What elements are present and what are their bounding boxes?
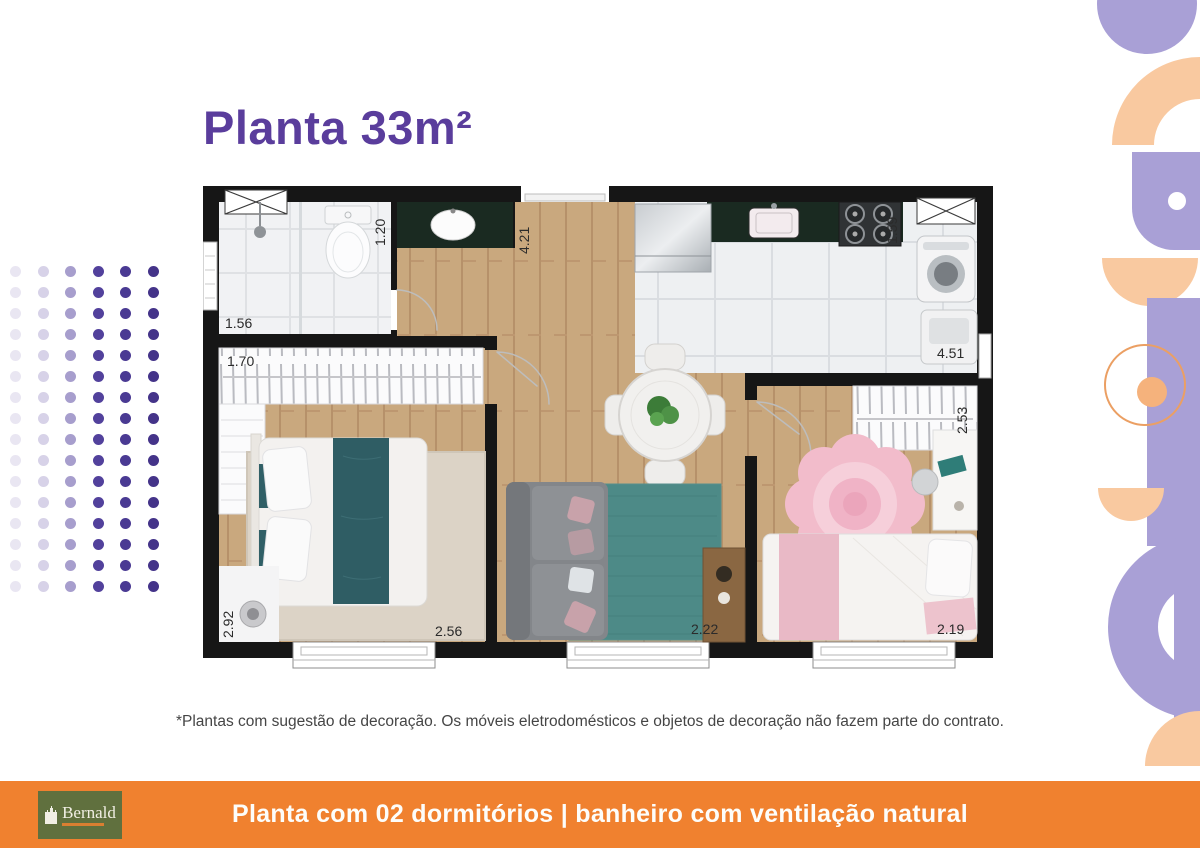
bedroom1	[219, 348, 485, 642]
kitchen-faucet	[771, 203, 777, 209]
dot	[120, 350, 131, 361]
dot	[120, 560, 131, 571]
dot	[148, 455, 159, 466]
washing-machine-icon	[917, 236, 975, 302]
logo-text: Bernald	[62, 804, 116, 821]
dot	[65, 560, 76, 571]
dot	[93, 497, 104, 508]
dot	[120, 539, 131, 550]
dim-bedroom2-length: 2.53	[954, 407, 970, 434]
deco-quarter-ring	[1112, 57, 1200, 145]
chair	[645, 344, 685, 370]
dot	[38, 581, 49, 592]
desk	[933, 430, 977, 530]
dot	[38, 350, 49, 361]
sofa-pillow	[567, 566, 594, 593]
kitchen-window-icon	[917, 198, 975, 224]
logo-box: Bernald	[38, 791, 122, 839]
dot	[38, 455, 49, 466]
dot	[93, 560, 104, 571]
dot	[148, 308, 159, 319]
bed1-pillow	[262, 446, 312, 512]
dot	[120, 308, 131, 319]
pouf-center	[247, 608, 259, 620]
dot	[120, 287, 131, 298]
dim-shower: 1.56	[225, 315, 252, 331]
dot	[38, 266, 49, 277]
dot	[148, 371, 159, 382]
dim-kitchen-length: 4.51	[937, 345, 964, 361]
dot	[120, 266, 131, 277]
dot	[120, 413, 131, 424]
dot	[10, 266, 21, 277]
dot	[120, 581, 131, 592]
dot	[38, 371, 49, 382]
dot	[93, 476, 104, 487]
hall-floor	[397, 248, 515, 336]
sideboard-decor	[716, 566, 732, 582]
dim-living: 2.22	[691, 621, 718, 637]
sideboard-decor	[718, 592, 730, 604]
bathroom-window-icon	[225, 190, 287, 214]
dot	[93, 287, 104, 298]
dot	[10, 434, 21, 445]
dot	[38, 539, 49, 550]
banner-text: Planta com 02 dormitórios | banheiro com…	[232, 800, 968, 829]
dot	[38, 329, 49, 340]
dot	[65, 497, 76, 508]
dot	[148, 476, 159, 487]
dot	[93, 371, 104, 382]
deco-ring-dot	[1137, 377, 1167, 407]
dot	[148, 287, 159, 298]
side-shaft-icon	[203, 242, 217, 310]
dot	[120, 455, 131, 466]
dot	[38, 434, 49, 445]
dot	[93, 308, 104, 319]
dot	[93, 581, 104, 592]
dot	[148, 266, 159, 277]
dot	[38, 560, 49, 571]
dot	[38, 392, 49, 403]
vanity-faucet	[451, 209, 456, 214]
dot	[120, 476, 131, 487]
living-window-icon	[567, 642, 709, 668]
dot	[65, 518, 76, 529]
dot	[65, 392, 76, 403]
dot	[148, 518, 159, 529]
dot	[120, 371, 131, 382]
dot	[65, 371, 76, 382]
dot	[120, 434, 131, 445]
dot	[93, 266, 104, 277]
dot	[148, 413, 159, 424]
dot	[10, 329, 21, 340]
floor-plan-svg: 1.56 1.20 4.21 1.59 4.51 1.70 2.92 2.56 …	[203, 186, 993, 671]
bathroom-door-opening	[391, 290, 397, 330]
dot	[65, 266, 76, 277]
dot	[38, 518, 49, 529]
dot	[38, 476, 49, 487]
dot	[120, 392, 131, 403]
dot	[38, 497, 49, 508]
entry-floor	[515, 202, 635, 336]
dot	[10, 455, 21, 466]
bedroom1-window-icon	[293, 642, 435, 668]
dim-bathroom: 1.20	[372, 219, 388, 246]
dot	[65, 434, 76, 445]
dot	[10, 350, 21, 361]
bedroom2-door-opening	[745, 400, 757, 456]
shower-glass	[299, 202, 302, 334]
dim-kitchen-width: 1.59	[884, 217, 900, 244]
dim-bedroom2-width: 2.19	[937, 621, 964, 637]
dot	[93, 455, 104, 466]
dot	[10, 413, 21, 424]
dot	[65, 350, 76, 361]
dim-bedroom1-width: 2.56	[435, 623, 462, 639]
footer-banner: Bernald Planta com 02 dormitórios | banh…	[0, 781, 1200, 848]
sofa-back	[506, 482, 530, 640]
sofa-pillow	[567, 528, 595, 556]
deco-dot	[1168, 192, 1186, 210]
flyer-page: { "page": { "title_text": "Planta 33m²" …	[0, 0, 1200, 848]
page-title: Planta 33m²	[203, 100, 472, 155]
laundry-window-icon	[979, 334, 991, 378]
dot	[10, 497, 21, 508]
dim-hall: 4.21	[516, 227, 532, 254]
deco-block	[1132, 152, 1200, 250]
dot	[120, 329, 131, 340]
dot	[65, 581, 76, 592]
vanity-sink-icon	[431, 210, 475, 240]
entry-door-leaf	[525, 194, 605, 201]
dot	[10, 560, 21, 571]
dot	[93, 539, 104, 550]
logo-tagline	[62, 823, 104, 826]
dot	[148, 539, 159, 550]
bed2-blanket	[779, 534, 839, 640]
dot	[10, 476, 21, 487]
dot	[10, 371, 21, 382]
shower-head-icon	[254, 226, 266, 238]
dot	[65, 539, 76, 550]
dot-grid	[2, 261, 167, 597]
dot	[93, 350, 104, 361]
floor-plan: 1.56 1.20 4.21 1.59 4.51 1.70 2.92 2.56 …	[203, 186, 993, 671]
fridge-icon	[635, 204, 711, 272]
toilet-tank-icon	[325, 206, 371, 224]
dot	[148, 434, 159, 445]
dot	[65, 413, 76, 424]
dot	[148, 350, 159, 361]
dot	[10, 308, 21, 319]
disclaimer-text: *Plantas com sugestão de decoração. Os m…	[0, 713, 1180, 731]
dot	[65, 287, 76, 298]
dot	[148, 392, 159, 403]
bed2-pillow	[925, 539, 973, 598]
dot	[65, 476, 76, 487]
dot	[65, 329, 76, 340]
logo-building-icon	[44, 806, 57, 824]
dot	[148, 560, 159, 571]
dot	[120, 518, 131, 529]
dot	[93, 518, 104, 529]
dim-bedroom1-length: 2.92	[220, 611, 236, 638]
bedroom1-door-opening	[485, 350, 497, 404]
desk-lamp	[954, 501, 964, 511]
dot	[65, 455, 76, 466]
dot	[148, 497, 159, 508]
dim-wardrobe: 1.70	[227, 353, 254, 369]
bedroom2-window-icon	[813, 642, 955, 668]
dot	[38, 413, 49, 424]
dot	[148, 581, 159, 592]
desk-chair	[912, 469, 938, 495]
dot	[38, 308, 49, 319]
living-room	[506, 482, 745, 642]
dot	[93, 329, 104, 340]
dot	[10, 518, 21, 529]
dot	[38, 287, 49, 298]
dot	[93, 413, 104, 424]
chair	[645, 460, 685, 486]
dot	[10, 392, 21, 403]
dot	[65, 308, 76, 319]
dot	[93, 434, 104, 445]
dot	[120, 497, 131, 508]
dot	[10, 539, 21, 550]
vanity	[397, 202, 513, 248]
dot	[10, 581, 21, 592]
dot	[93, 392, 104, 403]
deco-circle	[1097, 0, 1197, 54]
dot	[10, 287, 21, 298]
dot	[148, 329, 159, 340]
